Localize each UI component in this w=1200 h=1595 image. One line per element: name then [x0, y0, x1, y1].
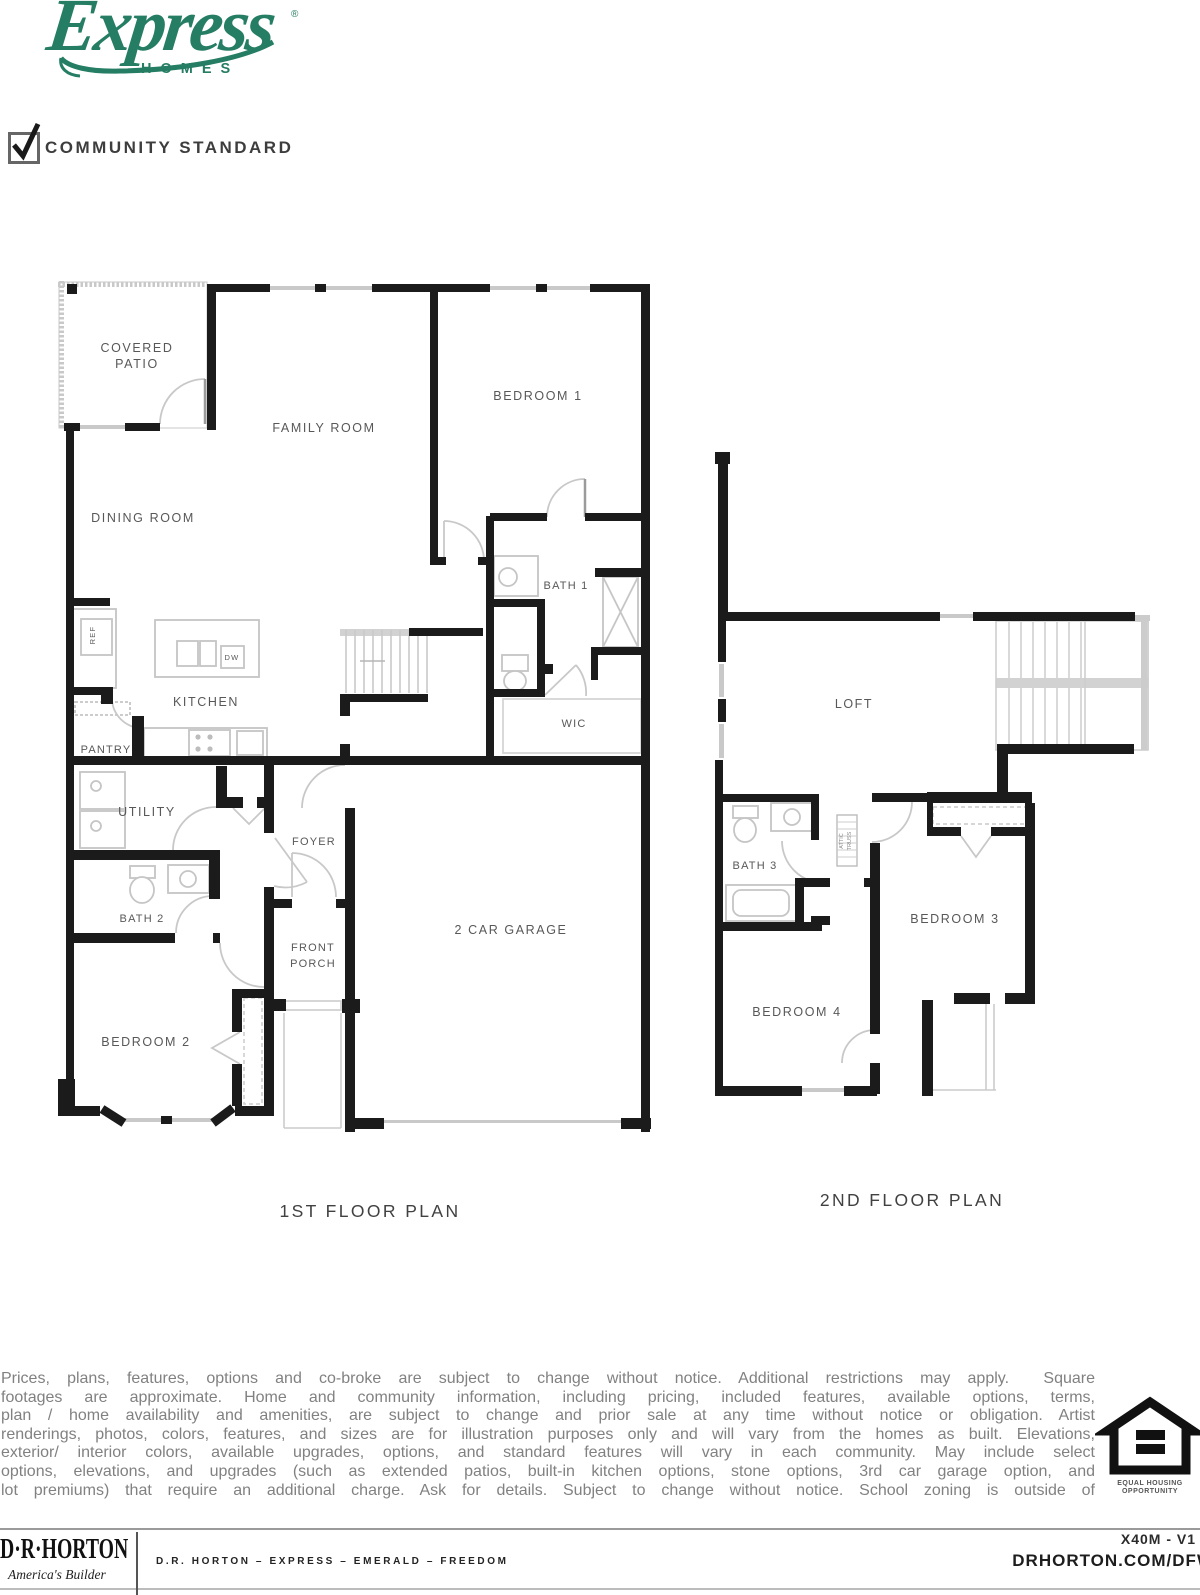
svg-text:OPPORTUNITY: OPPORTUNITY: [1122, 1488, 1178, 1495]
svg-text:FOYER: FOYER: [292, 836, 336, 848]
svg-text:BEDROOM 3: BEDROOM 3: [910, 912, 999, 926]
svg-text:BATH 3: BATH 3: [733, 860, 778, 872]
svg-text:PANTRY: PANTRY: [81, 744, 132, 756]
svg-text:PATIO: PATIO: [115, 357, 159, 371]
svg-text:DW: DW: [225, 653, 240, 662]
svg-text:FAMILY ROOM: FAMILY ROOM: [272, 421, 375, 435]
svg-text:BEDROOM 1: BEDROOM 1: [493, 389, 582, 403]
svg-text:COVERED: COVERED: [100, 341, 173, 355]
svg-text:DINING ROOM: DINING ROOM: [91, 511, 195, 525]
svg-text:REF: REF: [88, 626, 97, 645]
svg-text:TRUSS: TRUSS: [847, 831, 853, 850]
svg-text:2ND FLOOR PLAN: 2ND FLOOR PLAN: [820, 1190, 1004, 1210]
svg-text:BATH 2: BATH 2: [120, 913, 165, 925]
svg-text:BEDROOM 4: BEDROOM 4: [752, 1005, 841, 1019]
svg-text:ATTIC: ATTIC: [839, 833, 845, 849]
svg-text:1ST FLOOR PLAN: 1ST FLOOR PLAN: [279, 1201, 460, 1221]
svg-text:LOFT: LOFT: [835, 697, 873, 711]
svg-text:WIC: WIC: [562, 718, 587, 730]
svg-text:FRONT: FRONT: [291, 942, 335, 954]
svg-text:BATH 1: BATH 1: [544, 580, 589, 592]
svg-text:KITCHEN: KITCHEN: [173, 695, 239, 709]
svg-text:EQUAL HOUSING: EQUAL HOUSING: [1117, 1480, 1183, 1487]
svg-text:UTILITY: UTILITY: [118, 805, 176, 819]
svg-text:PORCH: PORCH: [290, 958, 336, 970]
svg-text:BEDROOM 2: BEDROOM 2: [101, 1035, 190, 1049]
svg-text:2 CAR GARAGE: 2 CAR GARAGE: [455, 923, 568, 937]
